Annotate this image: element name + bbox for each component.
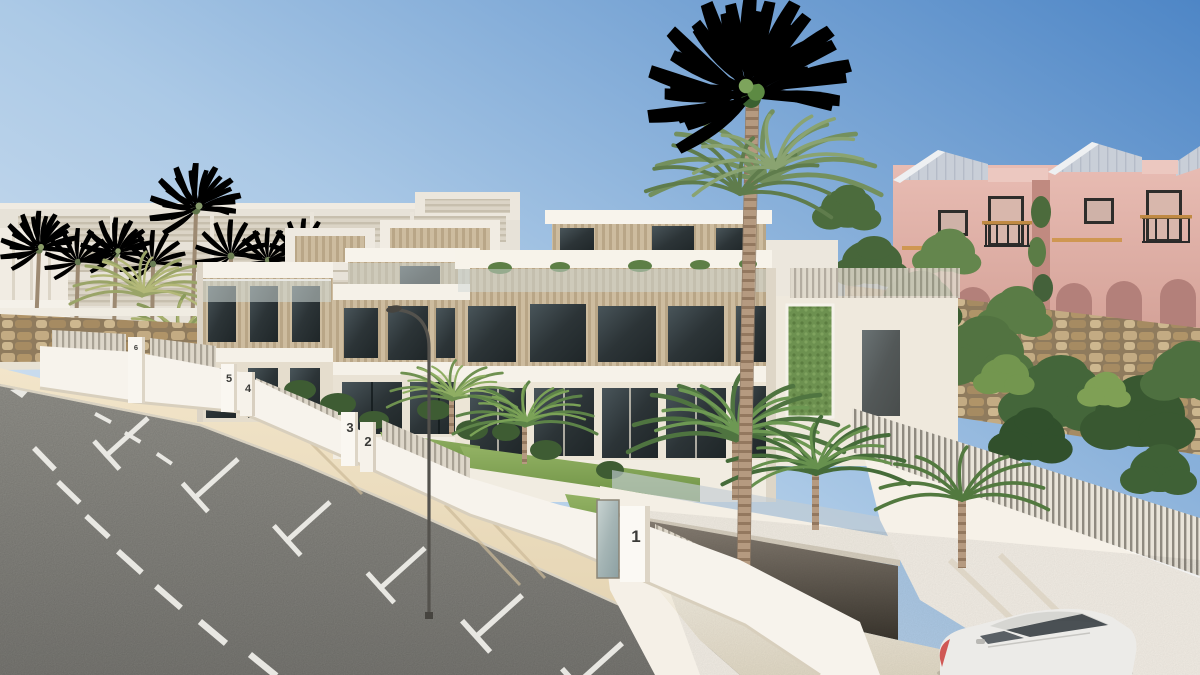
plot-number-3: 3 — [346, 420, 353, 435]
penthouse — [545, 210, 772, 254]
car-mirror — [976, 639, 985, 644]
plot-pillar-1: 1 — [620, 506, 650, 582]
plot-number-1: 1 — [631, 527, 640, 546]
plot-pillar-2: 2 — [360, 422, 376, 472]
pedestrian-gate — [597, 500, 619, 578]
block-a-balustrade — [199, 279, 331, 302]
scene-architectural-render: 6 5 4 3 2 1 — [0, 0, 1200, 675]
block-b-windows — [344, 306, 470, 360]
block-c-windows-upper — [468, 304, 766, 362]
block-c-terrace-balustrade — [458, 269, 768, 292]
plot-number-4: 4 — [245, 383, 252, 395]
render-canvas: 6 5 4 3 2 1 — [0, 0, 1200, 675]
plot-number-6: 6 — [134, 343, 138, 352]
plot-number-5: 5 — [226, 373, 232, 385]
plot-pillar-4: 4 — [240, 372, 255, 416]
plot-pillar-3: 3 — [341, 412, 358, 466]
plot-pillar-5: 5 — [221, 364, 237, 412]
plot-number-2: 2 — [364, 434, 371, 449]
plot-pillar-6: 6 — [128, 337, 145, 403]
